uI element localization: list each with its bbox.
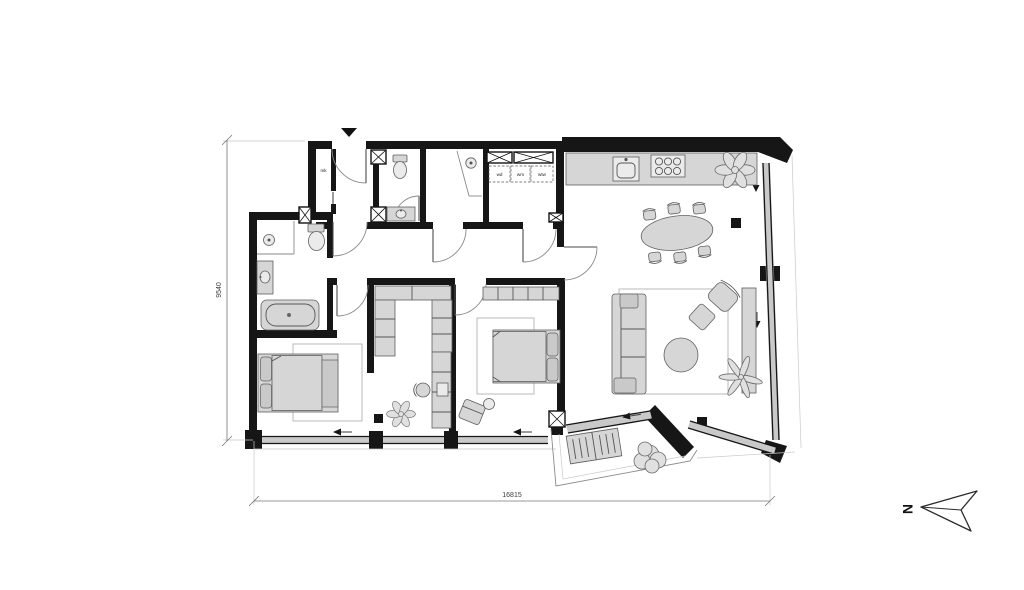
- chair: [673, 252, 687, 265]
- living-door: [564, 247, 597, 280]
- bedroom-2: [458, 287, 560, 425]
- entrance-marker: [341, 128, 357, 137]
- bathroom: [257, 221, 325, 330]
- bed: [493, 330, 560, 383]
- meter-cabinet-label: mk: [320, 168, 327, 173]
- shower-room: [457, 151, 482, 196]
- chair: [642, 208, 656, 221]
- bench: [566, 428, 622, 464]
- chair: [648, 252, 662, 265]
- shaft-box: [371, 207, 386, 222]
- toilet-icon: [308, 224, 325, 251]
- shaft-box: [487, 152, 512, 163]
- desk-chair: [414, 383, 448, 397]
- wardrobe: [483, 287, 559, 300]
- utility-room: wd wm wtw: [489, 166, 553, 182]
- floor-plan-canvas: wd wm wtw mk: [0, 0, 1024, 590]
- dining-set: [638, 198, 717, 267]
- chair: [692, 202, 706, 215]
- washer-label: wm: [517, 172, 524, 177]
- column: [731, 218, 741, 228]
- chair: [697, 246, 711, 259]
- shower-corner: [257, 221, 294, 254]
- sliding-arrow: [513, 429, 532, 436]
- entrance-arrow-icon: [341, 128, 357, 137]
- ottoman: [688, 303, 716, 331]
- kitchen: [566, 150, 757, 190]
- heat-recovery-label: wtw: [538, 172, 547, 177]
- shaft-box: [514, 152, 553, 163]
- north-label: N: [900, 504, 916, 514]
- height-dimension: 9540: [216, 282, 223, 298]
- wc-room: [387, 155, 415, 221]
- plant-icon: [719, 355, 763, 399]
- bed: [258, 354, 338, 412]
- sink-icon: [613, 157, 639, 181]
- shaft-box: [299, 207, 311, 223]
- bedroom1-door: [337, 285, 368, 316]
- living-room: [612, 198, 763, 398]
- walk-in-closet: [375, 286, 452, 428]
- plant-icon: [387, 400, 416, 429]
- shaft-box: [549, 411, 565, 427]
- dryer-label: wd: [497, 172, 503, 177]
- entrance-door: [332, 149, 366, 183]
- chair: [458, 399, 486, 426]
- sliding-arrow: [333, 429, 352, 436]
- shower-glass: [457, 151, 469, 196]
- corridor-door: [523, 229, 556, 262]
- armchair: [706, 278, 742, 314]
- shaft-box: [371, 150, 386, 164]
- sofa: [612, 294, 646, 394]
- north-arrow: N: [900, 491, 977, 531]
- bush-icon: [634, 442, 666, 473]
- width-dimension: 16815: [502, 492, 522, 499]
- side-table: [484, 399, 495, 410]
- coffee-table: [664, 338, 698, 372]
- hob-icon: [651, 155, 685, 177]
- column: [374, 414, 383, 423]
- vanity-icon: [257, 261, 273, 294]
- bathtub-icon: [261, 300, 319, 330]
- hall-door: [333, 222, 367, 256]
- corridor-door: [433, 229, 466, 262]
- floor-plan-page: wd wm wtw mk: [0, 0, 1024, 590]
- shaft-box: [549, 213, 563, 222]
- toilet-icon: [393, 155, 407, 179]
- vanity-icon: [387, 207, 415, 221]
- shower-head-icon: [466, 158, 476, 168]
- north-arrow-icon: [921, 491, 977, 531]
- chair: [667, 202, 681, 215]
- bedroom2-door: [455, 284, 486, 315]
